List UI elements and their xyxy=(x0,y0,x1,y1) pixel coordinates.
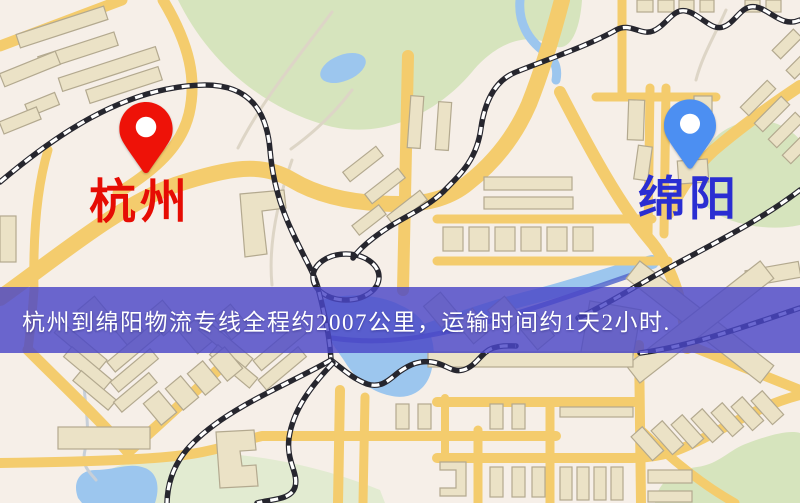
destination-pin-icon xyxy=(664,98,716,170)
origin-pin-icon xyxy=(119,102,173,173)
route-info-banner: 杭州到绵阳物流专线全程约2007公里，运输时间约1天2小时. xyxy=(0,287,800,353)
map-canvas xyxy=(0,0,800,503)
logistics-route-map: 杭州 绵阳 杭州到绵阳物流专线全程约2007公里，运输时间约1天2小时. xyxy=(0,0,800,503)
route-info-text: 杭州到绵阳物流专线全程约2007公里，运输时间约1天2小时. xyxy=(0,303,671,337)
destination-label: 绵阳 xyxy=(638,177,740,224)
origin-label: 杭州 xyxy=(89,180,191,227)
